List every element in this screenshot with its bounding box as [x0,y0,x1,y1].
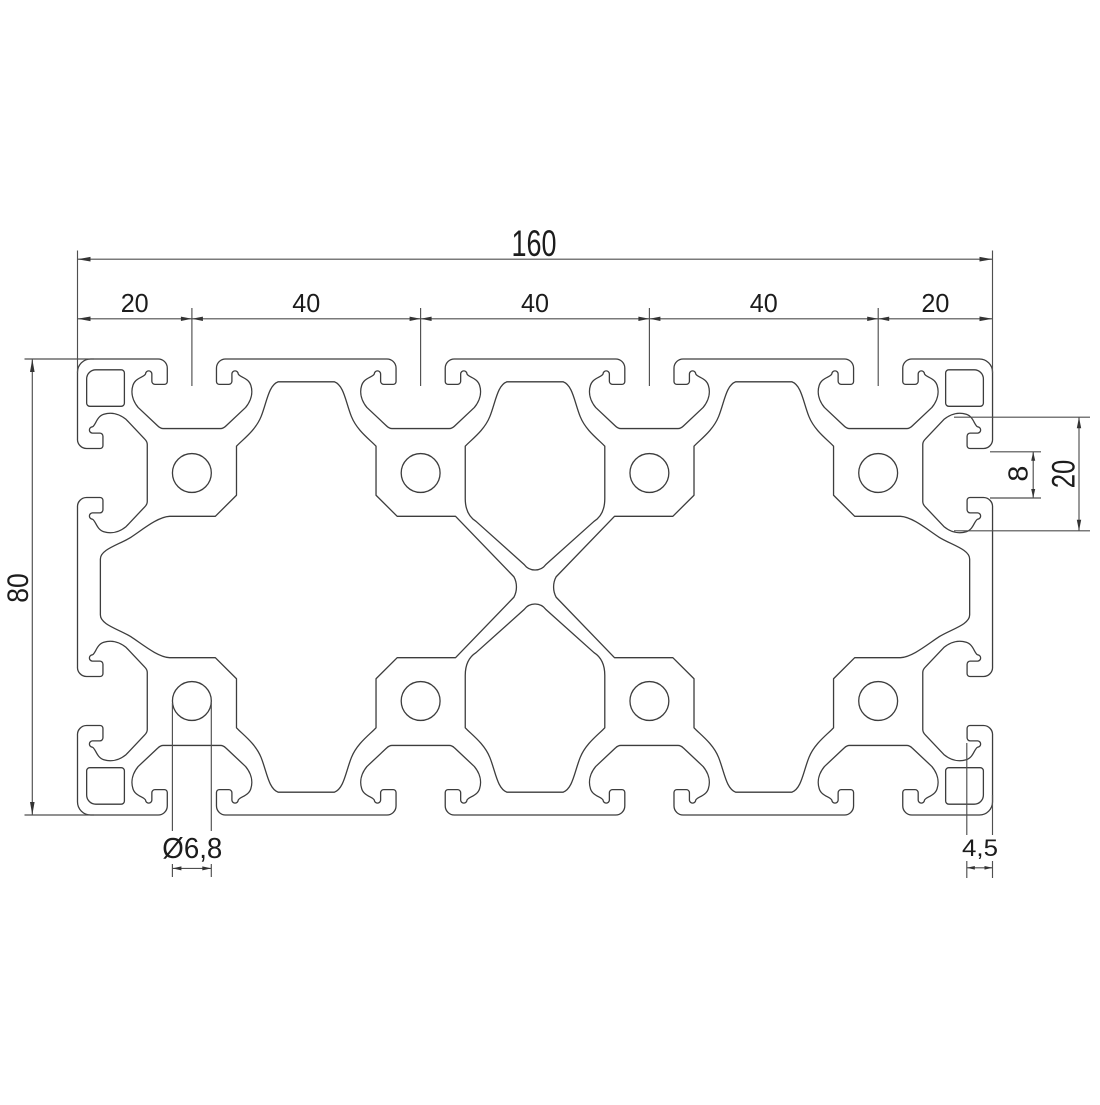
svg-text:4,5: 4,5 [962,835,998,862]
svg-text:20: 20 [921,290,949,318]
svg-text:Ø6,8: Ø6,8 [162,833,222,865]
svg-text:8: 8 [1003,466,1034,482]
svg-text:80: 80 [2,573,35,603]
svg-text:40: 40 [292,290,320,318]
svg-text:40: 40 [521,290,549,318]
svg-text:20: 20 [121,290,149,318]
svg-text:40: 40 [750,290,778,318]
svg-text:160: 160 [512,222,557,264]
svg-text:20: 20 [1046,460,1082,489]
